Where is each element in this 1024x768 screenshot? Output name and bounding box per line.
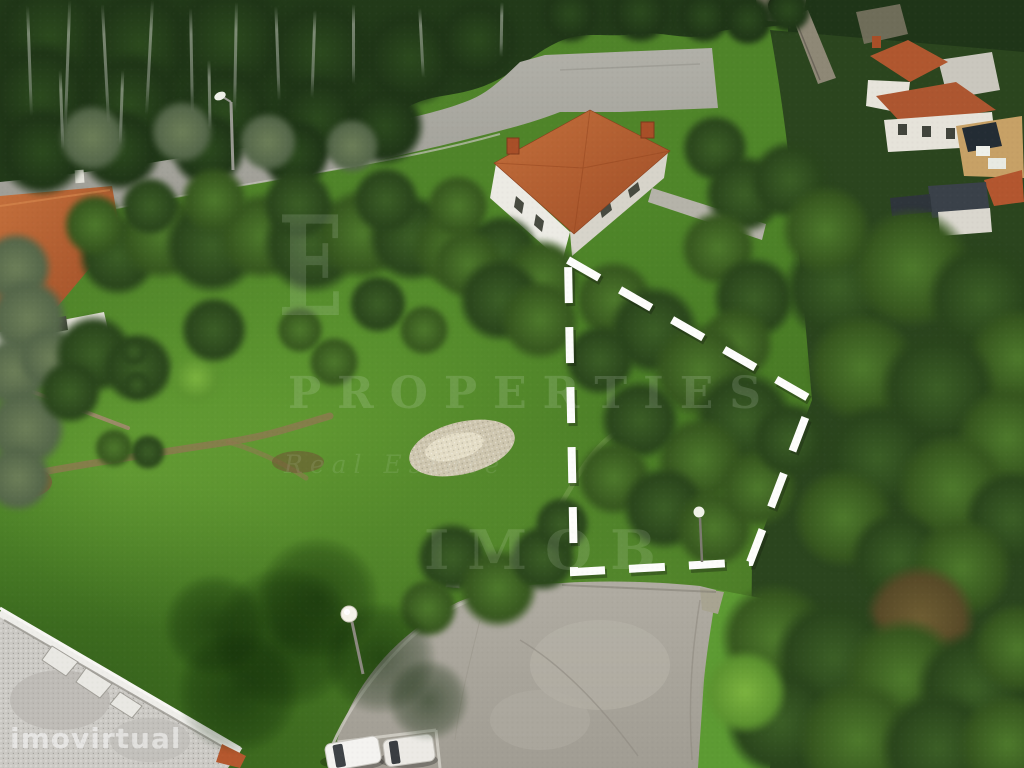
street-lamp [694,507,705,563]
aerial-photo: E PROPERTIES Real Estate IMOB imovirtual [0,0,1024,768]
street-lamp [341,606,363,674]
plot-boundary-shadow [570,263,814,575]
street-lamp [213,90,233,170]
boundary-overlay [0,0,1024,768]
plot-boundary-dashed [568,260,812,572]
